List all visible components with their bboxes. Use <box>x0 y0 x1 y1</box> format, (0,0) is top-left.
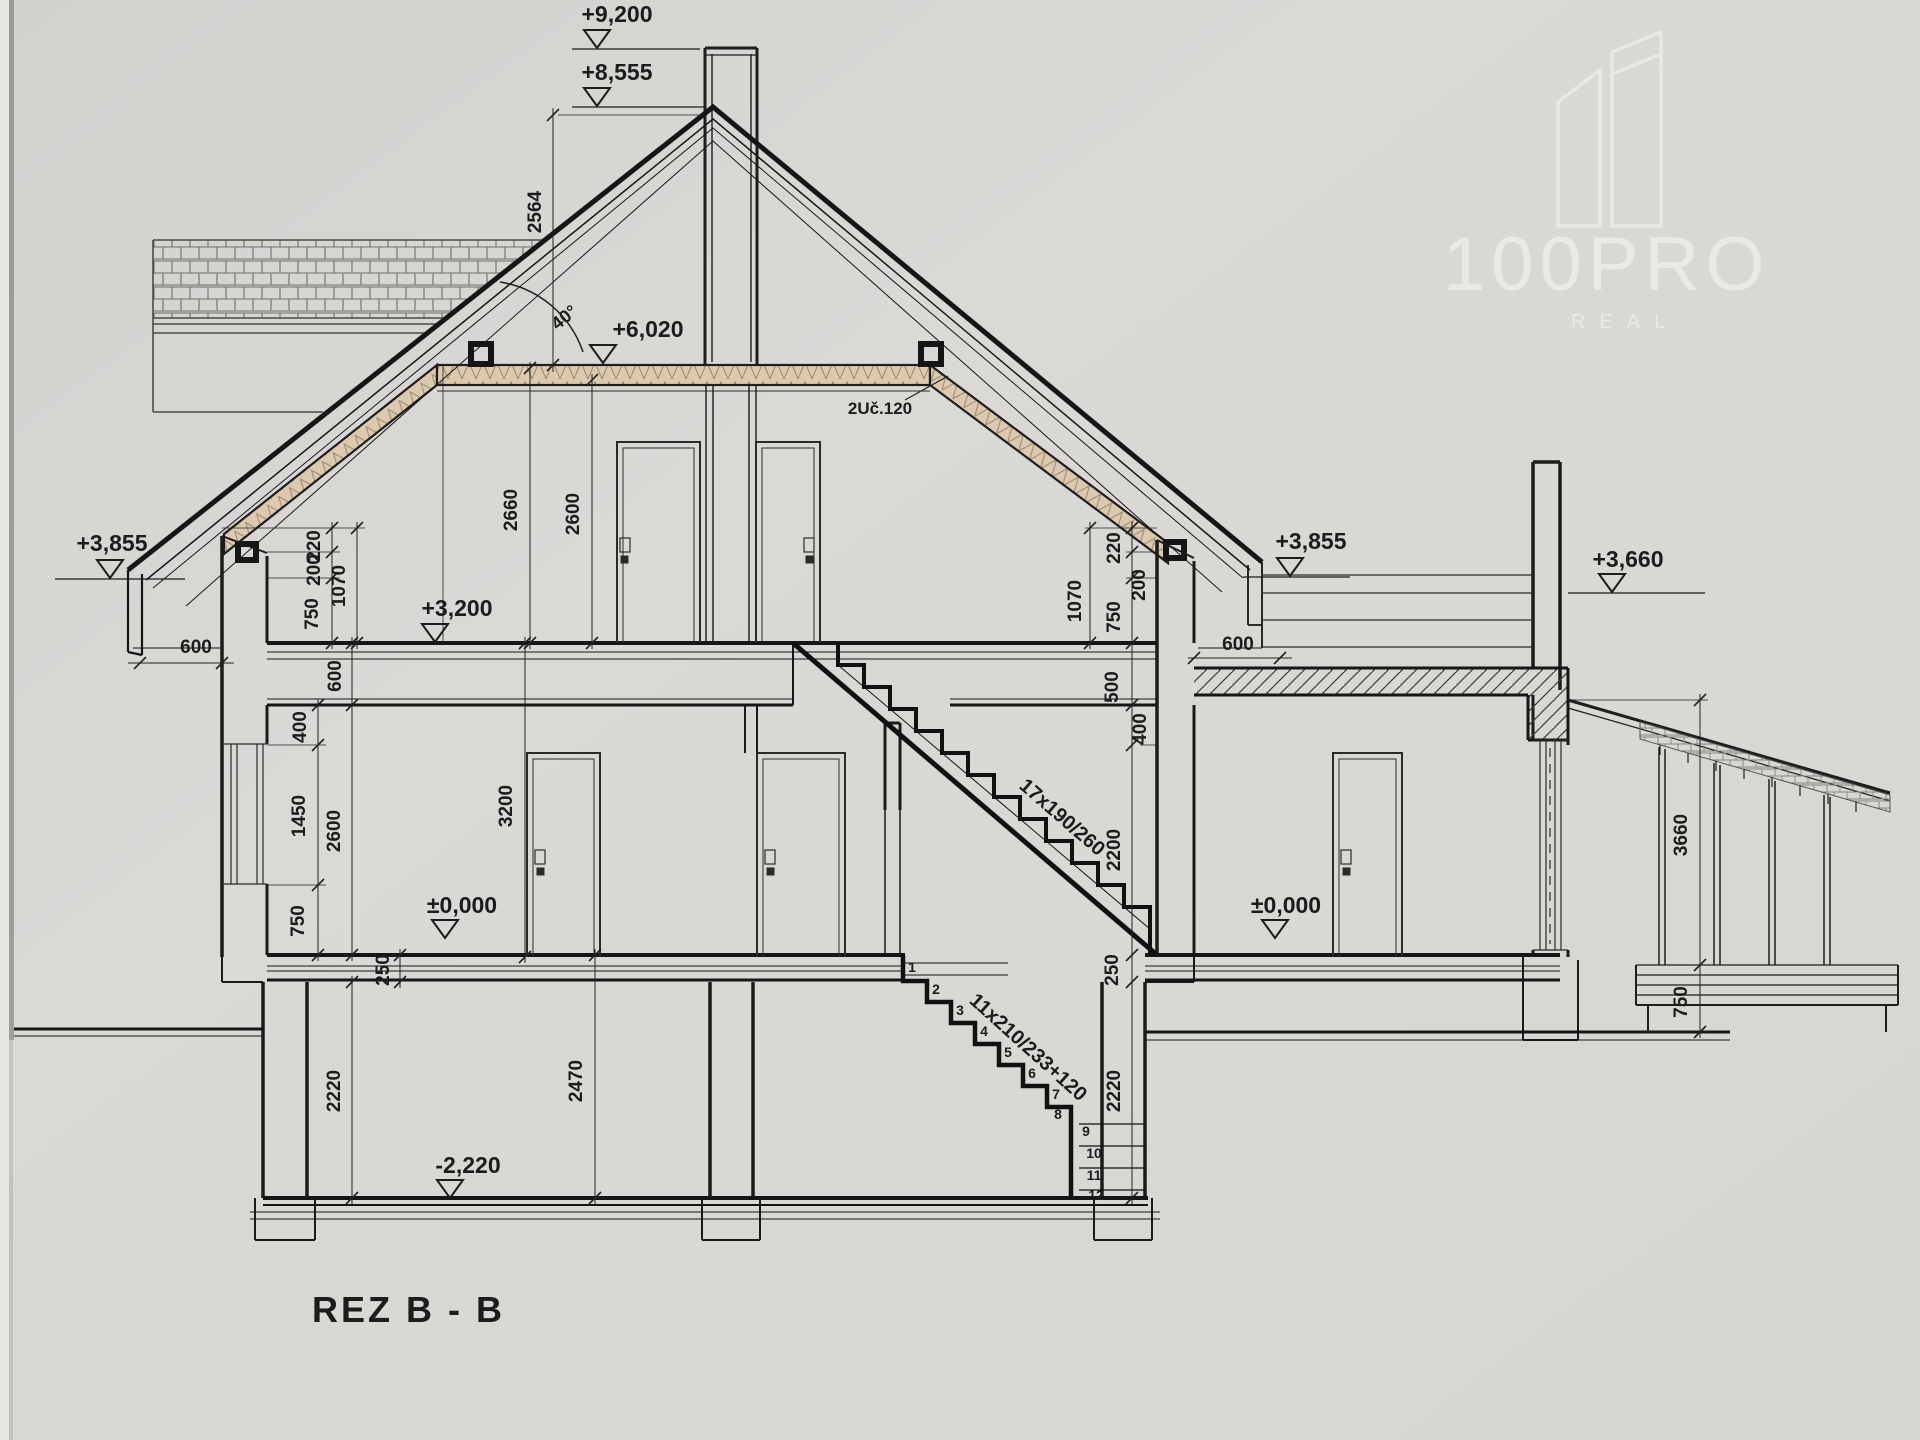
step-number: 7 <box>1052 1086 1060 1102</box>
dim-2470: 2470 <box>566 1060 587 1102</box>
step-number: 9 <box>1082 1123 1090 1139</box>
step-number: 12 <box>1088 1187 1104 1203</box>
level-8555: +8,555 <box>582 59 653 85</box>
dim-2220-right: 2220 <box>1104 1070 1125 1112</box>
step-number: 2 <box>932 981 940 997</box>
dim-750-left-low: 750 <box>288 905 309 937</box>
dim-400-left: 400 <box>290 711 311 743</box>
section-drawing: 100PRO REAL <box>0 0 1920 1440</box>
level-3660: +3,660 <box>1593 546 1664 572</box>
dim-750-porch: 750 <box>1671 986 1692 1018</box>
dim-1070-right: 1070 <box>1065 580 1086 622</box>
dim-2220-left: 2220 <box>324 1070 345 1112</box>
dim-220-right: 220 <box>1104 532 1125 564</box>
step-number: 3 <box>956 1002 964 1018</box>
level-m2220: -2,220 <box>435 1152 500 1178</box>
step-number: 4 <box>980 1023 988 1039</box>
dim-2564: 2564 <box>525 190 546 233</box>
dim-1450: 1450 <box>289 795 310 837</box>
dim-200-right: 200 <box>1129 569 1150 601</box>
dim-2600-floor: 2600 <box>324 810 345 852</box>
logo-sub: REAL <box>1571 311 1679 333</box>
dim-600-left: 600 <box>180 637 212 658</box>
step-number: 1 <box>908 959 916 975</box>
beam-note: 2Uč.120 <box>848 399 912 418</box>
dim-400-right: 400 <box>1130 713 1151 745</box>
dim-500: 500 <box>1102 671 1123 703</box>
level-3855-left: +3,855 <box>77 530 148 556</box>
dim-3200: 3200 <box>496 785 517 827</box>
scan-edge-shadow-lower <box>9 1040 13 1440</box>
level-3855-right: +3,855 <box>1276 528 1347 554</box>
level-3200: +3,200 <box>422 595 493 621</box>
dim-750-right: 750 <box>1104 601 1125 633</box>
step-number: 11 <box>1087 1167 1102 1183</box>
dim-250-right: 250 <box>1102 954 1123 986</box>
drawing-title: REZ B - B <box>312 1289 505 1330</box>
step-number: 5 <box>1004 1044 1012 1060</box>
dim-2660: 2660 <box>501 489 522 531</box>
level-0-right: ±0,000 <box>1251 892 1321 918</box>
dim-2200: 2200 <box>1104 829 1125 871</box>
dim-750-left-eave: 750 <box>302 598 323 630</box>
dim-600-right: 600 <box>1222 634 1254 655</box>
dim-600-slab: 600 <box>325 660 346 692</box>
level-0-left: ±0,000 <box>427 892 497 918</box>
dim-2600-attic: 2600 <box>563 493 584 535</box>
scan-edge-shadow <box>9 0 14 1040</box>
dim-250-left: 250 <box>373 954 394 986</box>
dim-1070-left: 1070 <box>329 565 350 607</box>
step-number: 8 <box>1054 1106 1062 1122</box>
logo-brand: 100PRO <box>1443 222 1771 307</box>
level-9200: +9,200 <box>582 1 653 27</box>
scan-edge-white <box>0 0 9 1440</box>
step-number: 6 <box>1028 1065 1036 1081</box>
scanned-drawing-page: 100PRO REAL <box>0 0 1920 1440</box>
dim-200-left: 200 <box>304 554 325 586</box>
dim-3660: 3660 <box>1671 814 1692 856</box>
level-6020: +6,020 <box>613 316 684 342</box>
step-number: 10 <box>1086 1145 1102 1161</box>
